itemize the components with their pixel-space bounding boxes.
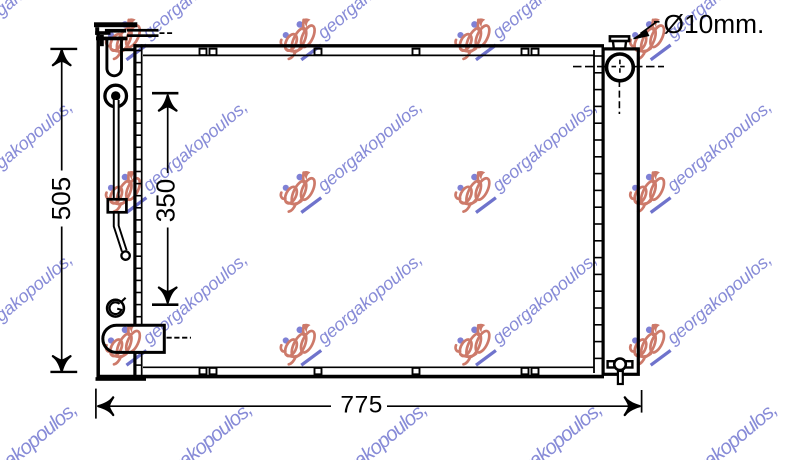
svg-text:775: 775 xyxy=(340,391,383,418)
svg-text:505: 505 xyxy=(46,177,76,220)
